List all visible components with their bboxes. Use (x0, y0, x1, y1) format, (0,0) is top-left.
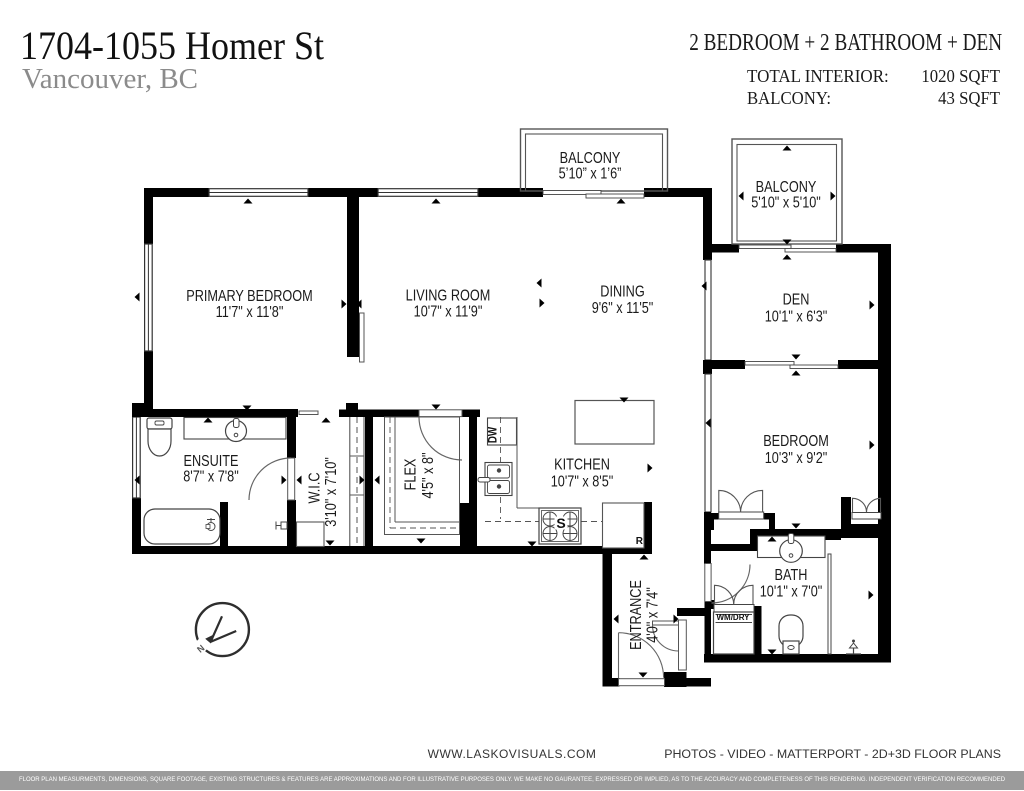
svg-text:10'7" x 11'9": 10'7" x 11'9" (414, 303, 483, 320)
svg-text:4'0" x 7'4": 4'0" x 7'4" (644, 587, 661, 643)
svg-text:R: R (636, 536, 644, 547)
svg-text:DW: DW (487, 426, 500, 443)
svg-text:ENTRANCE: ENTRANCE (628, 580, 645, 650)
svg-text:4'5" x 8": 4'5" x 8" (420, 452, 437, 498)
svg-text:10'1" x 6'3": 10'1" x 6'3" (765, 308, 828, 325)
svg-text:11'7" x 11'8": 11'7" x 11'8" (216, 304, 284, 321)
svg-text:BATH: BATH (775, 567, 808, 584)
svg-text:BEDROOM: BEDROOM (763, 433, 829, 450)
svg-text:DEN: DEN (783, 291, 810, 308)
svg-text:PRIMARY BEDROOM: PRIMARY BEDROOM (186, 288, 313, 305)
svg-text:FLEX: FLEX (402, 458, 419, 490)
svg-text:DINING: DINING (600, 283, 644, 300)
svg-text:8'7" x 7'8": 8'7" x 7'8" (183, 469, 239, 486)
svg-text:LIVING ROOM: LIVING ROOM (406, 287, 491, 304)
svg-text:WM/DRY: WM/DRY (716, 613, 750, 622)
svg-text:10'3" x 9'2": 10'3" x 9'2" (765, 450, 828, 467)
svg-text:S: S (556, 515, 565, 531)
svg-text:9'6" x 11'5": 9'6" x 11'5" (592, 300, 654, 317)
svg-text:10'1" x 7'0": 10'1" x 7'0" (760, 583, 823, 600)
svg-text:10'7" x 8'5": 10'7" x 8'5" (551, 473, 614, 490)
svg-text:W.I.C: W.I.C (306, 472, 323, 503)
svg-text:5’10” x 1’6”: 5’10” x 1’6” (559, 165, 622, 182)
svg-text:5'10" x 5'10": 5'10" x 5'10" (751, 194, 821, 211)
svg-text:KITCHEN: KITCHEN (554, 456, 610, 473)
svg-text:3'10" x 7'10": 3'10" x 7'10" (323, 457, 340, 527)
